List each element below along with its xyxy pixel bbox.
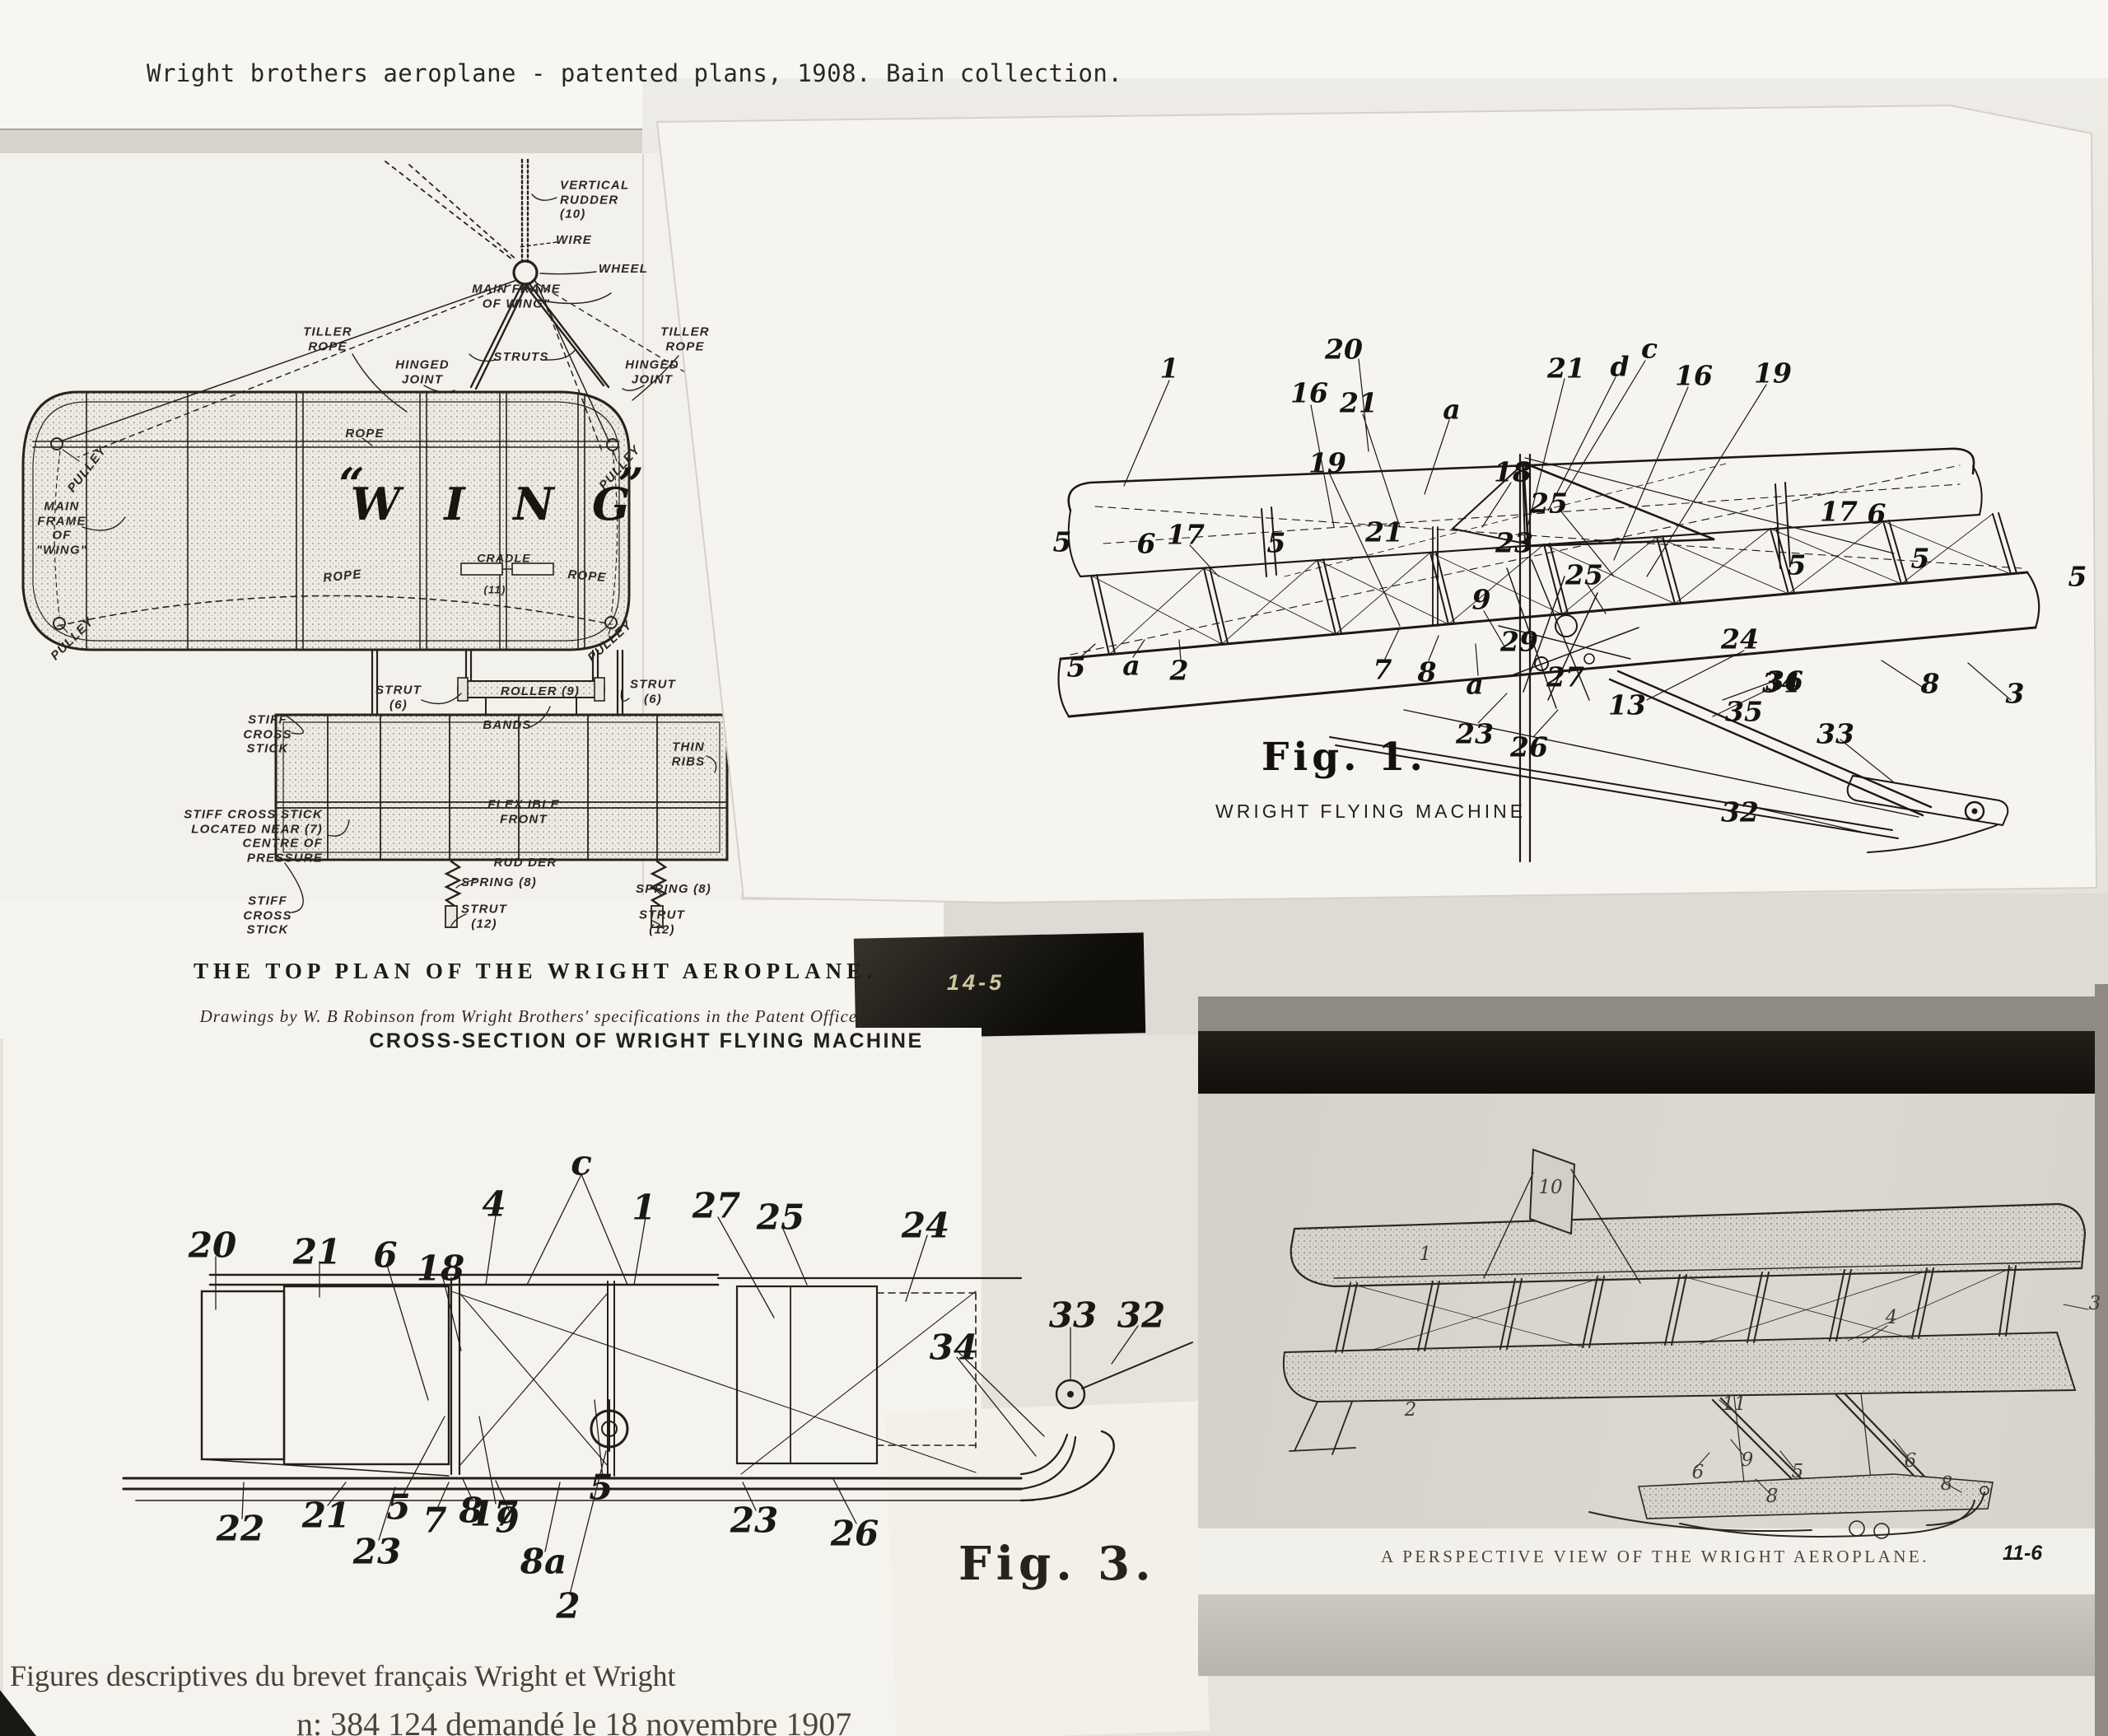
top-plan-caption-title: THE TOP PLAN OF THE WRIGHT AEROPLANE. [165,959,906,984]
fig1-figure-label: Fig. 1. [1262,735,1427,780]
photo-right-edge [2095,984,2108,1736]
perspective-caption: A PERSPECTIVE VIEW OF THE WRIGHT AEROPLA… [1350,1547,1960,1567]
fig3-figure-label: Fig. 3. [958,1537,1156,1591]
scanned-photo-collage: Wright brothers aeroplane - patented pla… [0,0,2108,1736]
perspective-dark-band [1198,1031,2108,1094]
perspective-gray-strip [1198,996,2108,1031]
french-patent-caption-line2: n: 384 124 demandé le 18 novembre 1907 [296,1705,851,1736]
header-caption: Wright brothers aeroplane - patented pla… [147,59,1122,87]
fig1-figure-caption: WRIGHT FLYING MACHINE [1215,800,1526,823]
top-plan-photo-region [0,153,776,901]
panel-seam [642,154,644,895]
fig3-callout: 33 [1049,1295,1097,1336]
fig3-photo-region [3,1028,982,1736]
french-patent-caption-line1: Figures descriptives du brevet français … [10,1659,767,1693]
perspective-bottom-strip [1198,1594,2108,1676]
top-plan-caption-credit: Drawings by W. B Robinson from Wright Br… [115,1006,947,1027]
fig3-title: CROSS-SECTION OF WRIGHT FLYING MACHINE [338,1029,955,1053]
plate-number-11-6: 11-6 [2003,1542,2042,1566]
fig3-callout: 32 [1117,1295,1165,1336]
plate-number-14-5: 14-5 [947,970,1005,996]
perspective-drawing-area [1198,1094,2108,1528]
